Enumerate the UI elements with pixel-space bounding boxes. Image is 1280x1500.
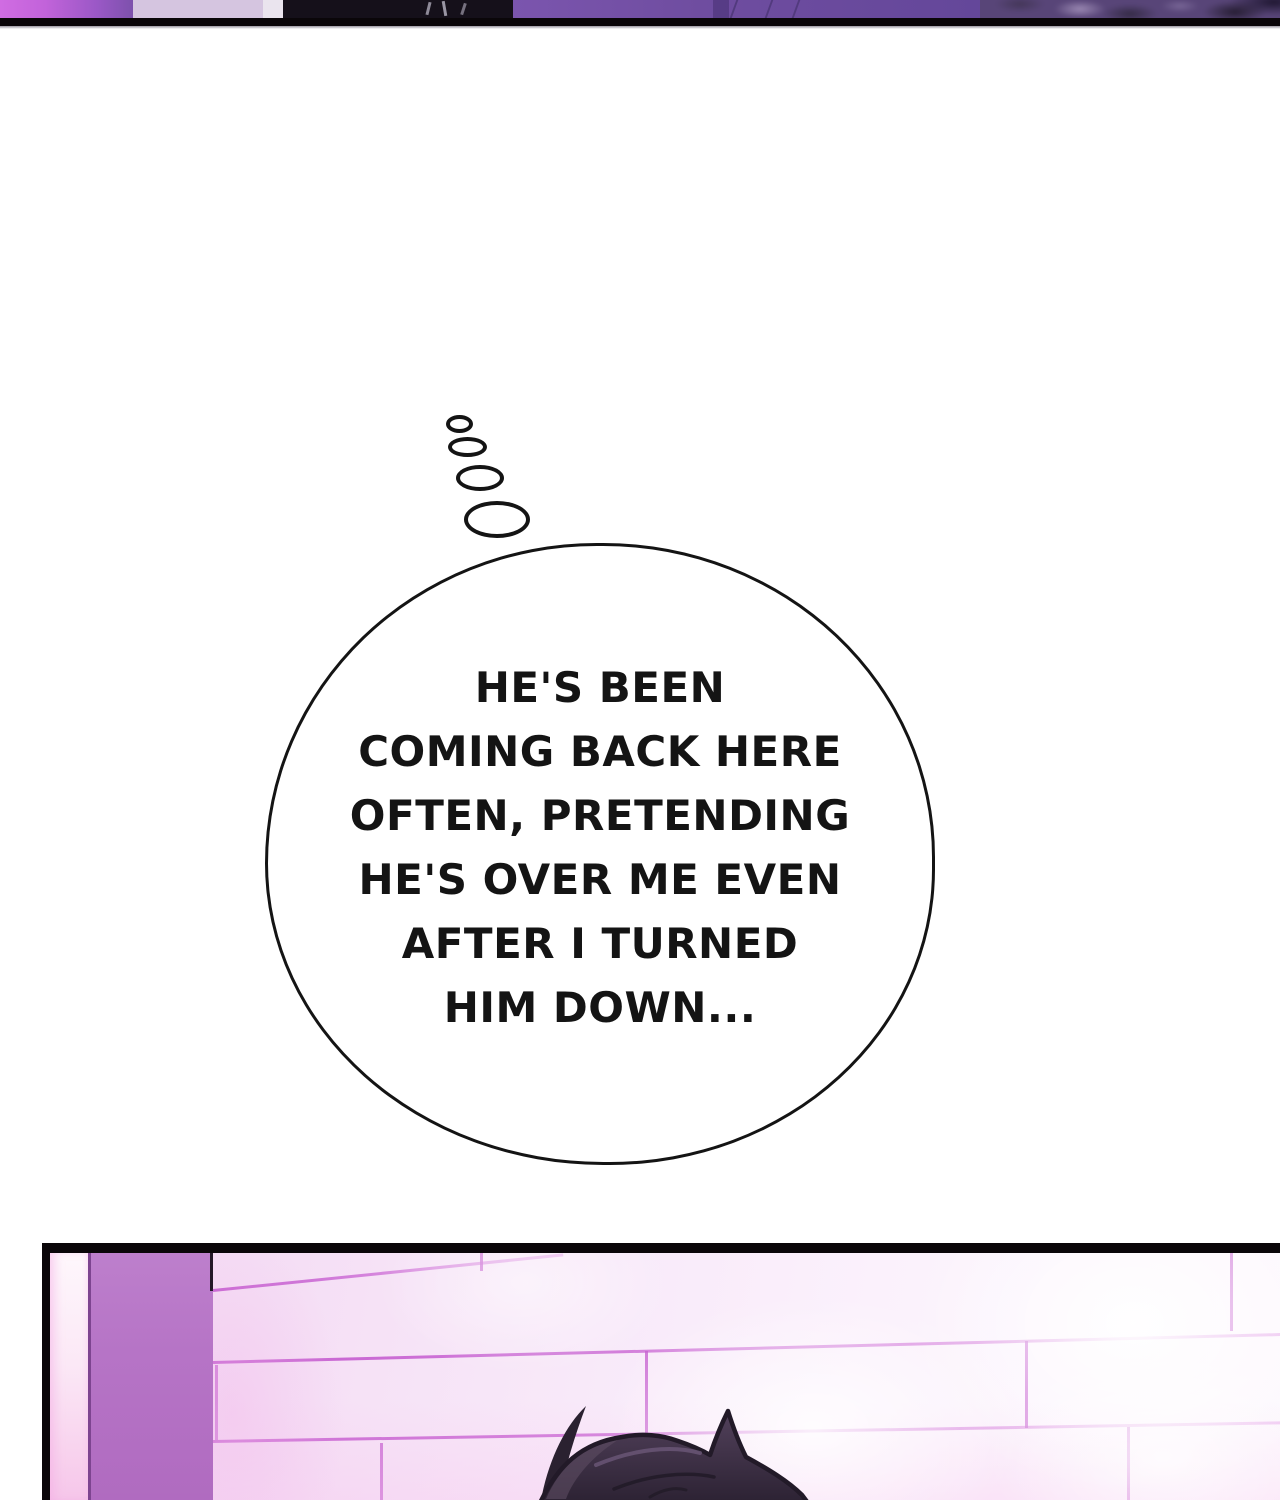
pale-clothing-shape (133, 0, 263, 18)
white-clothing-edge (263, 0, 283, 18)
previous-panel-artwork (0, 0, 1280, 18)
previous-panel-bottom-edge (0, 0, 1280, 28)
bottom-panel (42, 1243, 1280, 1500)
thought-trail-bubble (464, 501, 530, 538)
magenta-light-glow (0, 0, 150, 18)
lit-wall-edge (50, 1253, 88, 1500)
wall-shadow-column (713, 0, 729, 18)
blurred-background (980, 0, 1280, 18)
thought-trail-bubble (456, 465, 504, 491)
hair-strand (425, 2, 431, 15)
purple-wall (513, 0, 980, 18)
bottom-panel-artwork (50, 1253, 1280, 1500)
bubble-line: OFTEN, PRETENDING (268, 784, 932, 848)
panel-bottom-border (0, 18, 1280, 26)
comic-page: HE'S BEEN COMING BACK HERE OFTEN, PRETEN… (0, 0, 1280, 1500)
thought-bubble: HE'S BEEN COMING BACK HERE OFTEN, PRETEN… (265, 543, 935, 1165)
thought-trail-bubble (448, 437, 487, 457)
hair-strand (460, 3, 467, 15)
bubble-line: HIM DOWN... (268, 976, 932, 1040)
bubble-line: HE'S OVER ME EVEN (268, 848, 932, 912)
thought-bubble-text: HE'S BEEN COMING BACK HERE OFTEN, PRETEN… (268, 656, 932, 1040)
thought-trail-bubble (446, 415, 473, 433)
purple-pillar (88, 1253, 213, 1500)
hair-strand (442, 1, 448, 16)
blurred-background-texture (980, 0, 1280, 18)
dark-figure-silhouette (283, 0, 513, 18)
wall-seam (765, 0, 774, 18)
bubble-line: HE'S BEEN (268, 656, 932, 720)
wall-seam (792, 0, 801, 18)
bubble-line: COMING BACK HERE (268, 720, 932, 784)
panel-border-shadow (0, 26, 1280, 29)
bubble-line: AFTER I TURNED (268, 912, 932, 976)
wall-seam (730, 0, 739, 18)
character-head-hair (530, 1393, 820, 1500)
